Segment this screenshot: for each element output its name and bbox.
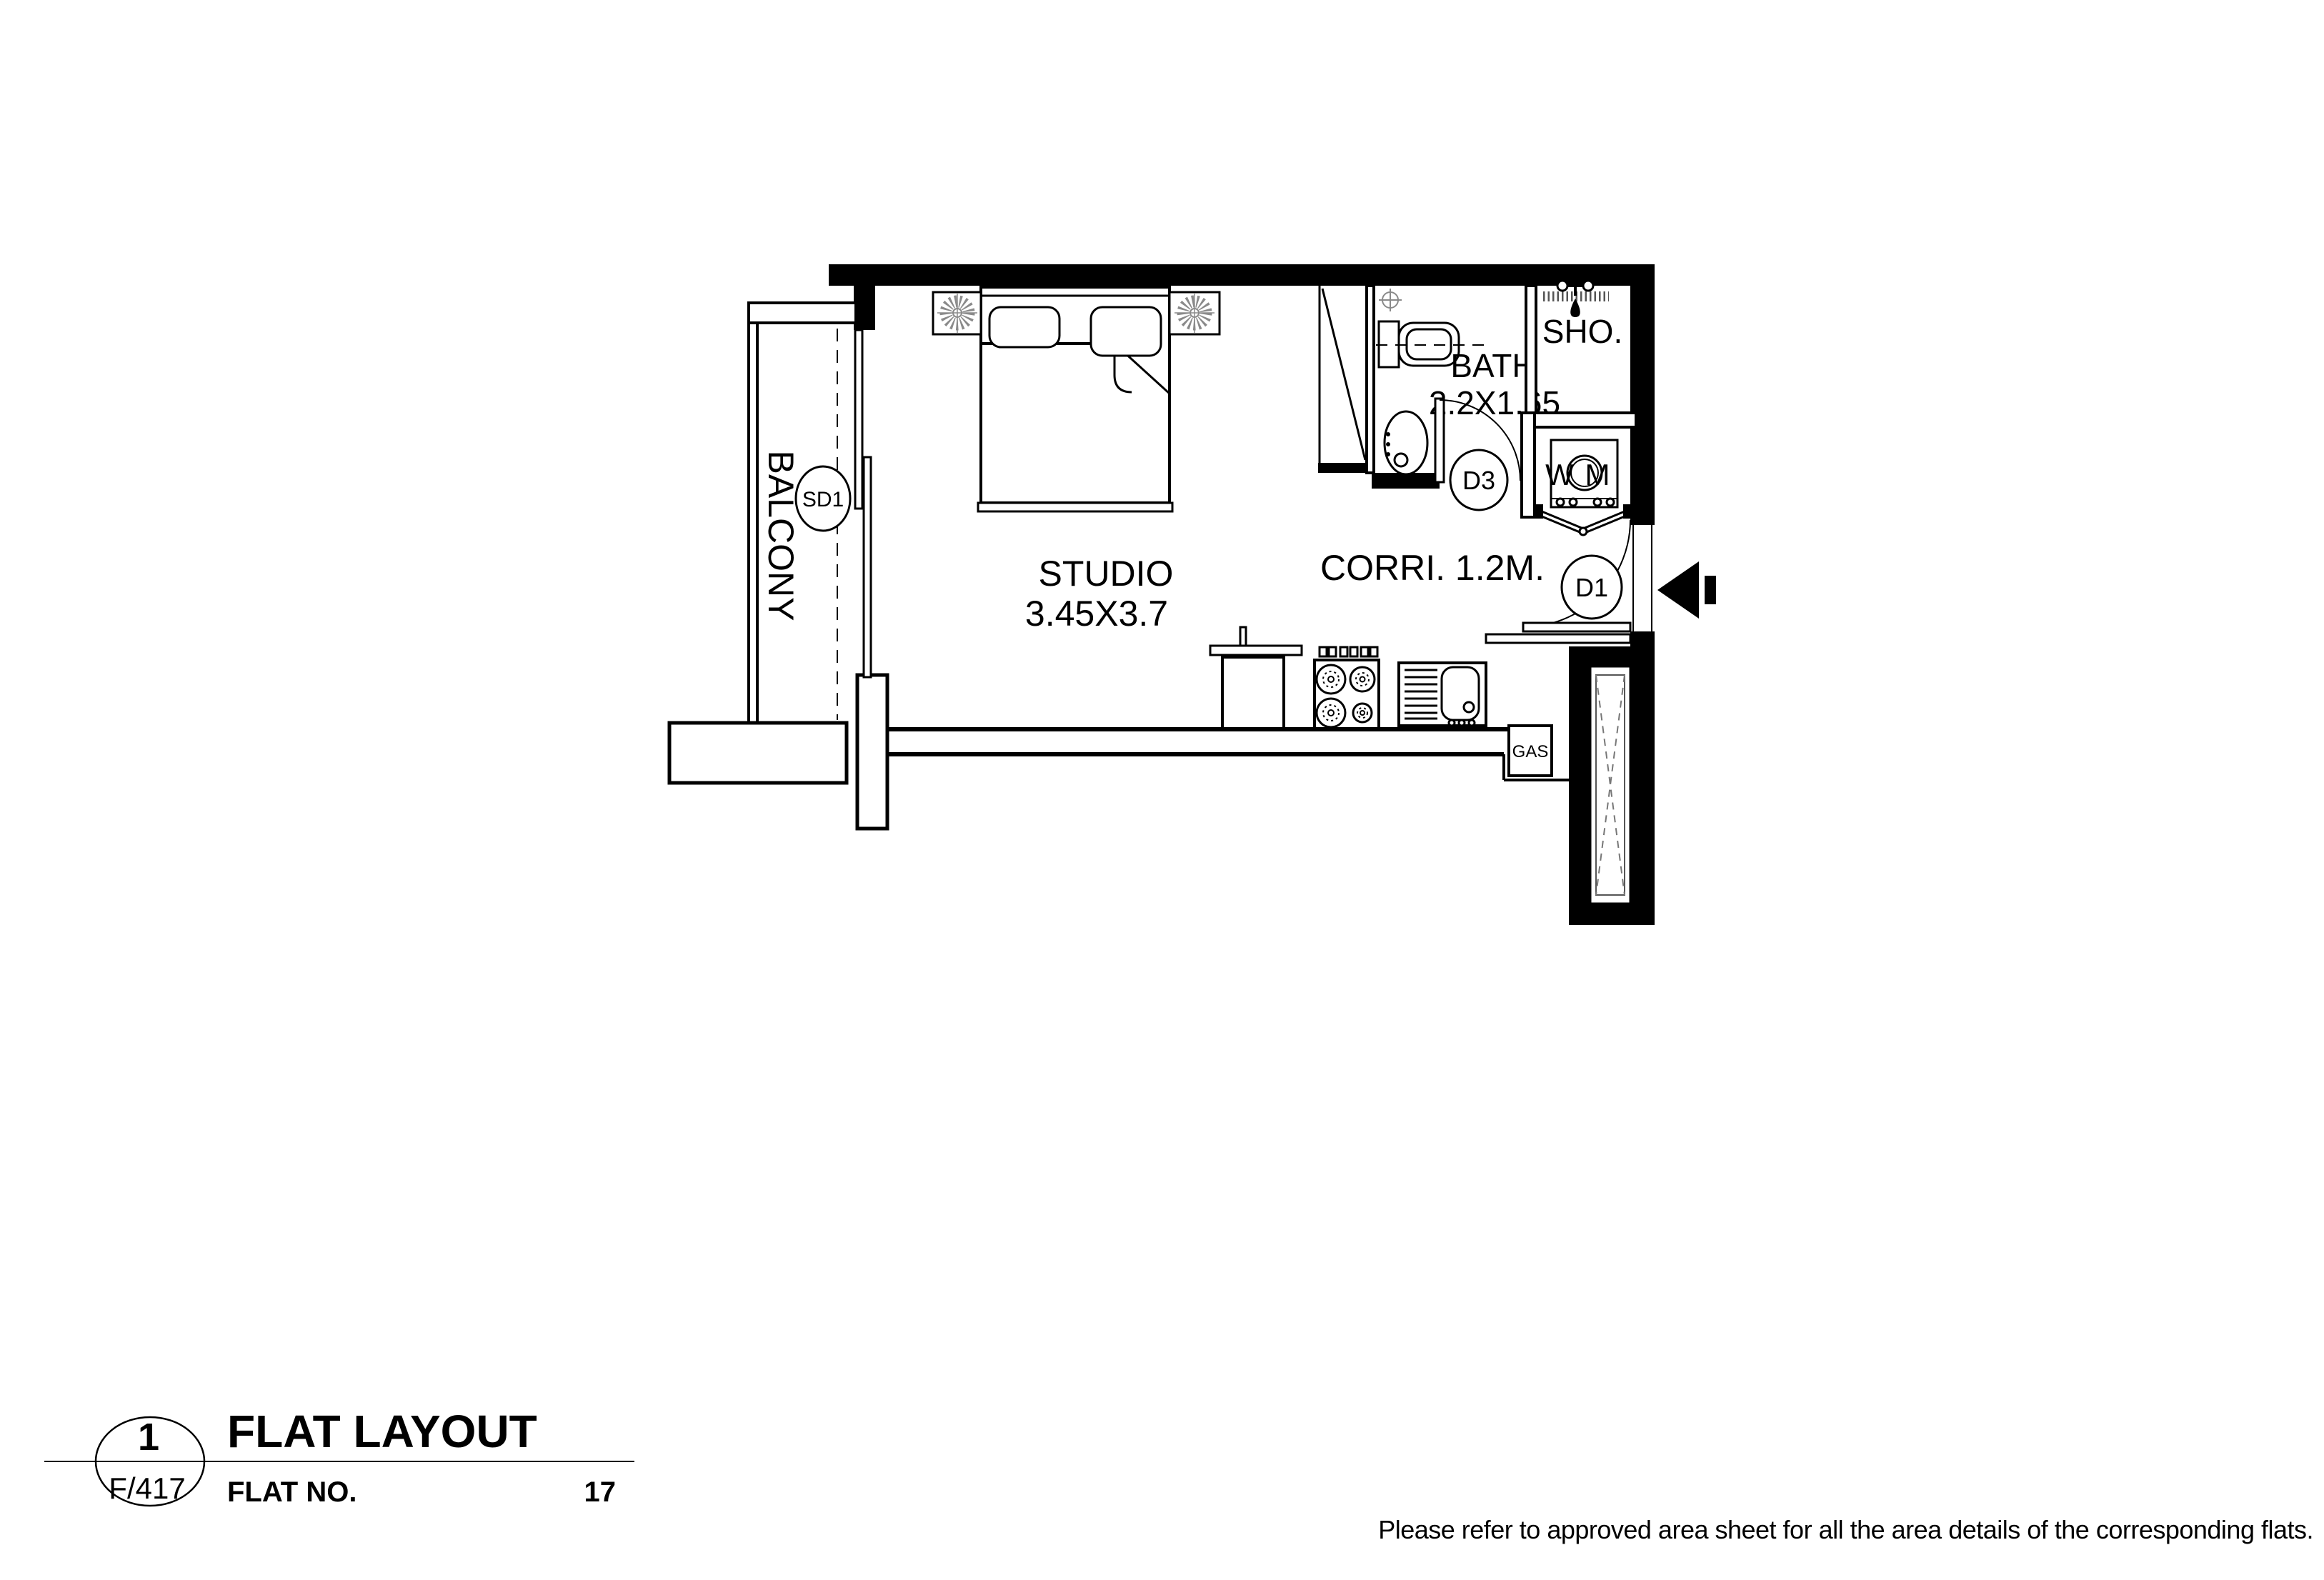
sd1-tag-label: SD1	[802, 488, 844, 511]
floor-plan-sheet: BALCONY SD1	[0, 0, 2324, 1580]
nightstand-right	[1170, 292, 1220, 334]
crosshair-icon	[1379, 289, 1402, 311]
sink-basin	[1442, 667, 1479, 720]
drawing-title: FLAT LAYOUT	[227, 1406, 537, 1457]
d1-tag-label: D1	[1575, 573, 1608, 602]
wm-label-w: W	[1545, 458, 1574, 491]
closet-left-wall	[1522, 413, 1535, 517]
corridor-label: CORRI. 1.2M.	[1320, 548, 1545, 588]
bifold-door	[1535, 504, 1632, 535]
shower-bottom-wall	[1522, 413, 1636, 427]
nightstand-left	[933, 292, 981, 334]
entrance-arrow-icon	[1657, 561, 1716, 619]
washing-machine: W M	[1545, 440, 1617, 507]
wall-pier	[857, 675, 887, 829]
shower-partition	[1526, 286, 1536, 416]
footnote: Please refer to approved area sheet for …	[1378, 1515, 2313, 1544]
wardrobe-door-diagonal	[1322, 289, 1365, 460]
detail-number: 1	[138, 1416, 159, 1459]
drawing-sheet: { "plan": { "balcony": { "label": "BALCO…	[0, 0, 2324, 1580]
balcony-label: BALCONY	[761, 451, 801, 621]
sliding-door-sd1	[855, 330, 871, 677]
flat-no-value: 17	[584, 1476, 617, 1508]
wardrobe	[1320, 286, 1374, 473]
kitchen-sink	[1399, 663, 1486, 726]
bath-label: BATH	[1450, 347, 1535, 384]
gas-label: GAS	[1512, 742, 1549, 761]
services-shaft	[1590, 666, 1630, 904]
shower-label: SHO.	[1542, 313, 1622, 350]
d3-tag-label: D3	[1462, 466, 1495, 495]
wm-label-m: M	[1585, 458, 1610, 491]
kitchen-cabinet	[1210, 627, 1302, 729]
wall-stub	[669, 723, 847, 783]
pillow-right	[1091, 307, 1161, 356]
hob	[1315, 647, 1379, 729]
footboard	[978, 503, 1172, 511]
tap-icon	[1240, 627, 1246, 646]
studio-dimensions: 3.45X3.7	[1025, 594, 1168, 634]
balcony: BALCONY SD1	[669, 303, 887, 829]
sheet-ref: F/417	[109, 1471, 185, 1505]
studio-label: STUDIO	[1039, 554, 1174, 594]
bed	[978, 287, 1172, 511]
title-block: 1 F/417 FLAT LAYOUT FLAT NO. 17	[44, 1406, 634, 1508]
corridor-sill	[1486, 634, 1630, 643]
flat-no-label: FLAT NO.	[227, 1476, 356, 1508]
washing-machine-closet: W M	[1522, 413, 1632, 535]
pillow-left	[989, 307, 1059, 347]
washbasin	[1385, 411, 1427, 474]
gas-meter-box: GAS	[1509, 726, 1552, 776]
